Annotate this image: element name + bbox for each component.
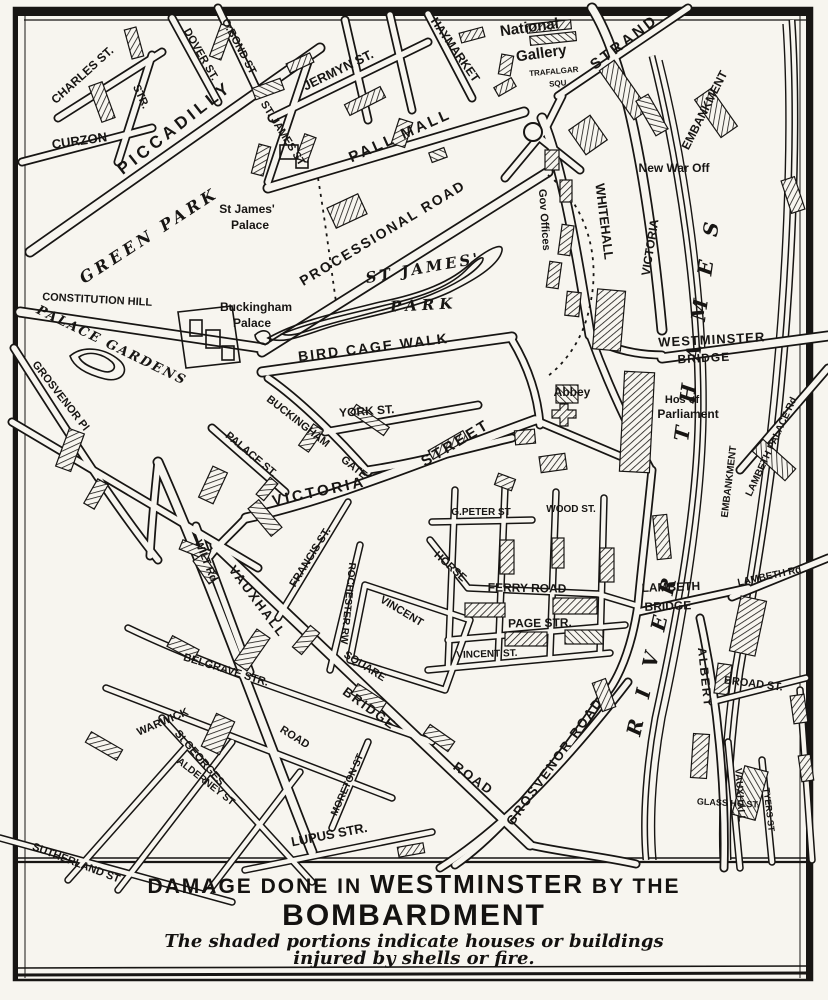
map-label: GLASS HO.ST. (697, 796, 760, 809)
map-label: FRANCIS ST. (287, 525, 333, 589)
map-label: ROAD (278, 724, 312, 751)
svg-text:DAMAGE DONE IN WESTMINSTER BY: DAMAGE DONE IN WESTMINSTER BY THE (147, 869, 680, 899)
caption: DAMAGE DONE IN WESTMINSTER BY THE BOMBAR… (147, 869, 680, 969)
map-label: SUTHERLAND ST (31, 841, 122, 886)
map-label: CONSTITUTION HILL (42, 291, 153, 309)
map-label: New War Off (639, 161, 711, 175)
map-label: PALACE GARDENS (33, 302, 189, 388)
map-label: TRAFALGAR (529, 65, 579, 78)
map-label: Abbey (554, 385, 591, 399)
map-label: GROSVENOR ROAD (503, 694, 606, 828)
map-label: WOOD ST. (546, 504, 596, 515)
map-label: FERRY ROAD (488, 580, 567, 595)
map-label: Buckingham (220, 300, 292, 314)
westminster-bombardment-map: CHARLES ST.STR.DOVER ST.O.BOND STCURZONP… (0, 0, 828, 1000)
map-label: Gov Offices (536, 189, 552, 251)
map-label: THAMES (669, 197, 727, 443)
map-label: PARK (389, 294, 458, 316)
map-label: Palace (233, 316, 271, 330)
map-label: PAGE STR. (508, 615, 572, 630)
map-label: St James' (219, 202, 275, 216)
caption-note-line2: injured by shells or fire. (293, 948, 534, 969)
caption-line1-em: WESTMINSTER (370, 869, 584, 899)
map-page: CHARLES ST.STR.DOVER ST.O.BOND STCURZONP… (0, 0, 828, 1000)
map-label: SQU (549, 78, 567, 88)
map-label: VICTORIA (271, 473, 368, 509)
map-label: WHITEHALL (592, 183, 616, 261)
caption-line1-post: BY THE (584, 875, 680, 898)
map-label: Palace (231, 218, 269, 232)
map-label: PALACE ST. (223, 430, 279, 480)
map-label: G.PETER ST (451, 507, 510, 518)
map-label: VINCENT ST. (456, 648, 518, 661)
map-label: EMBANKMENT (720, 445, 740, 518)
caption-line1-pre: DAMAGE DONE IN (147, 875, 370, 898)
charing-cross-circus (524, 123, 542, 141)
abbey-cross-icon (552, 404, 576, 426)
caption-line2: BOMBARDMENT (282, 899, 546, 932)
map-label: Gallery (515, 41, 568, 65)
